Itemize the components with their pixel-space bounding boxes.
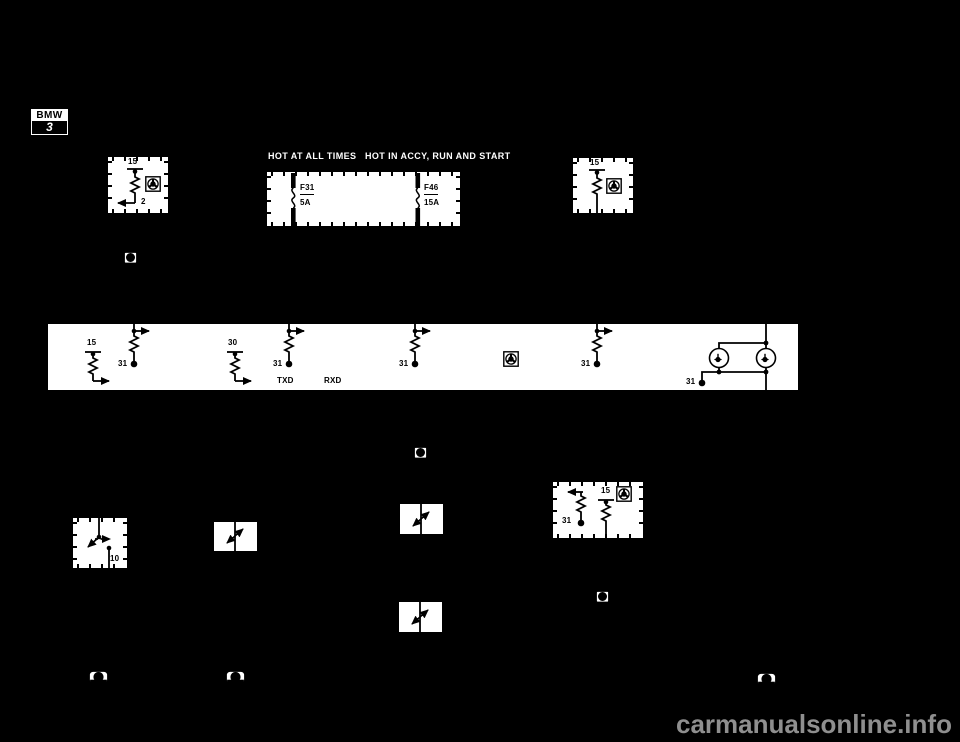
bmw-3-badge: BMW 3	[31, 109, 68, 135]
tick-border	[577, 209, 629, 216]
top-left-component-box	[108, 157, 168, 213]
fuse2-name: F46	[424, 184, 438, 195]
header-hot-in-accy-run-start: HOT IN ACCY, RUN AND START	[365, 152, 511, 161]
bus-label-txd: TXD	[277, 377, 294, 385]
fuse2-rating: 15A	[424, 199, 439, 207]
tick-border	[629, 162, 636, 209]
ground-icon	[757, 673, 776, 686]
band-ground-31: 31	[118, 360, 127, 368]
band-ground-31: 31	[273, 360, 282, 368]
tick-border	[271, 169, 456, 176]
tick-border	[557, 534, 639, 541]
inline-connector-box-1	[213, 521, 258, 552]
ground-icon	[89, 671, 108, 684]
watermark-text: carmanualsonline.info	[676, 710, 952, 739]
midbox-terminal-15: 15	[601, 487, 610, 495]
switch-pin-10: 10	[110, 555, 119, 563]
tick-border	[105, 161, 112, 209]
band-terminal-30: 30	[228, 339, 237, 347]
connector-dot-icon	[414, 447, 427, 459]
tick-border	[271, 222, 456, 229]
tick-border	[112, 209, 164, 216]
tick-border	[77, 515, 123, 522]
wiring-diagram-page: BMW 3	[0, 0, 960, 742]
tick-border	[123, 522, 130, 564]
tick-border	[639, 486, 646, 534]
band-ground-31: 31	[581, 360, 590, 368]
tick-border	[164, 161, 171, 209]
header-hot-at-all-times: HOT AT ALL TIMES	[268, 152, 356, 161]
terminal-label-15: 15	[128, 158, 137, 166]
tick-border	[77, 564, 123, 571]
tick-border	[550, 486, 557, 534]
mid-right-component-box	[553, 482, 643, 538]
fuse1-rating: 5A	[300, 199, 311, 207]
tick-border	[70, 522, 77, 564]
tick-border	[577, 155, 629, 162]
band-terminal-15: 15	[87, 339, 96, 347]
inline-connector-box-3	[398, 601, 443, 633]
inline-connector-box-2	[399, 503, 444, 535]
connector-dot-icon	[124, 252, 137, 264]
band-ground-31: 31	[399, 360, 408, 368]
series-3-label: 3	[32, 121, 67, 134]
bus-label-rxd: RXD	[324, 377, 342, 385]
tick-border	[264, 176, 271, 222]
pin-label-2: 2	[141, 198, 146, 206]
tick-border	[570, 162, 577, 209]
tick-border	[112, 154, 164, 161]
connector-dot-icon	[596, 591, 609, 603]
ground-icon	[226, 671, 245, 684]
top-right-component-box	[573, 158, 633, 213]
tick-border	[557, 479, 639, 486]
terminal-label-15: 15	[590, 159, 599, 167]
fuse1-name: F31	[300, 184, 314, 195]
lamps-ground-31: 31	[686, 378, 695, 386]
tick-border	[456, 176, 463, 222]
midbox-ground-31: 31	[562, 517, 571, 525]
